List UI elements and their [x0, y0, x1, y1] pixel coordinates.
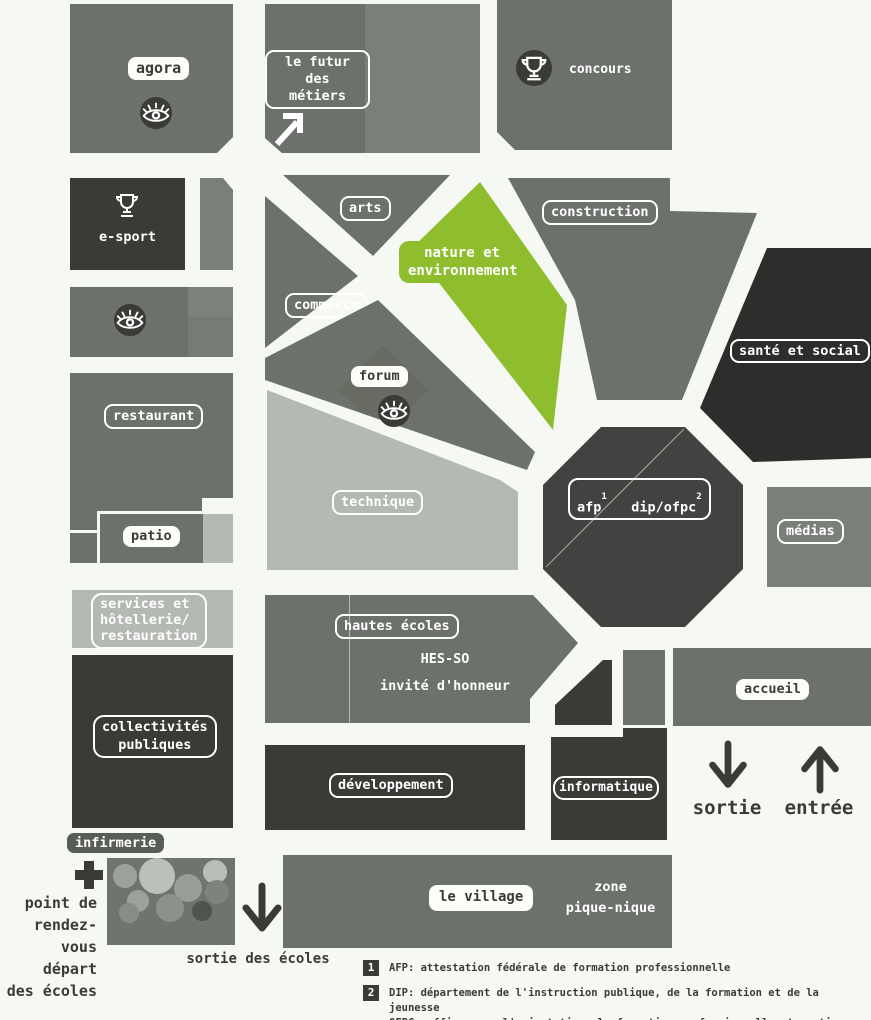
sortie-label: sortie: [689, 797, 765, 819]
sortie-arrow-icon: [706, 740, 750, 798]
spoke-wedge: [555, 660, 612, 725]
agora-label: agora: [128, 57, 189, 80]
nature-label: nature et environnement: [399, 241, 525, 283]
technique-label: technique: [332, 490, 423, 515]
esport-trophy-icon: [111, 190, 143, 226]
entree-label: entrée: [781, 797, 857, 819]
accueil-label: accueil: [736, 679, 809, 700]
infirmerie-label: infirmerie: [67, 833, 164, 853]
hautes-ecoles-label: hautes écoles: [335, 614, 459, 639]
medias-label: médias: [777, 519, 844, 544]
footnote-1-text: AFP: attestation fédérale de formation p…: [389, 960, 730, 976]
annex-block: [200, 178, 233, 270]
agora-eye-icon: [139, 96, 173, 134]
bubble: [192, 901, 212, 921]
entree-arrow-icon: [798, 740, 842, 798]
afp-text: afp: [577, 499, 601, 515]
bubble: [205, 880, 229, 904]
developpement-label: développement: [329, 773, 453, 798]
accueil-annex-block: [623, 650, 665, 725]
rdv-ecoles-text: point de rendez-vous départ des écoles: [0, 892, 97, 1002]
venue-floor-map: agora le futur des métiers concour: [0, 0, 871, 1020]
hesso-invite-text: HES-SO invité d'honneur: [370, 646, 520, 700]
esport-label: e-sport: [70, 229, 185, 245]
meeting-point-block: [107, 858, 235, 945]
bubble: [119, 903, 139, 923]
afp-footnote-ref: 1: [601, 492, 606, 502]
patio-side-terrace: [203, 514, 233, 563]
construction-label: construction: [542, 200, 658, 225]
forum-label: forum: [351, 366, 408, 387]
concours-label: concours: [569, 62, 632, 77]
bubble: [113, 864, 137, 888]
sortie-ecoles-label: sortie des écoles: [178, 951, 338, 967]
concours-trophy-icon: [516, 50, 552, 90]
informatique-label: informatique: [553, 776, 659, 800]
zone-pique-nique-label: zone pique-nique: [553, 877, 668, 919]
bubble: [156, 894, 184, 922]
dip-footnote-ref: 2: [696, 492, 701, 502]
bubble: [139, 858, 175, 894]
octagon-diagonal-line: [543, 427, 743, 627]
footnote-2-badge: 2: [363, 985, 379, 1001]
dip-ofpc-text: dip/ofpc: [631, 499, 696, 515]
restaurant-label: restaurant: [104, 404, 203, 429]
collectivites-label: collectivités publiques: [93, 715, 217, 758]
futur-label: le futur des métiers: [265, 50, 370, 109]
footnote-dip-ofpc: 2 DIP: département de l'instruction publ…: [363, 985, 871, 1020]
corner-divider: [70, 530, 97, 533]
footnote-2-text: DIP: département de l'instruction publiq…: [389, 985, 871, 1020]
afp-dip-ofpc-label: afp1 dip/ofpc2: [568, 478, 711, 520]
eye-block-shade-2: [188, 287, 233, 317]
afp-gap: [607, 499, 631, 515]
first-aid-cross-icon: [74, 858, 104, 896]
sante-label: santé et social: [730, 339, 870, 363]
services-label: services et hôtellerie/ restauration: [91, 593, 207, 649]
futur-arrow-icon: [271, 105, 305, 153]
village-label: le village: [429, 885, 533, 911]
forum-eye-icon: [377, 394, 411, 432]
exhibit-eye-block: [70, 287, 233, 357]
patio-divider-v: [97, 511, 100, 563]
footnote-afp: 1 AFP: attestation fédérale de formation…: [363, 960, 863, 976]
zone-afp-dip-ofpc: [543, 427, 743, 627]
arts-label: arts: [340, 196, 391, 221]
exhibit-eye-icon: [113, 303, 147, 341]
sortie-ecoles-arrow-icon: [240, 882, 284, 942]
footnote-1-badge: 1: [363, 960, 379, 976]
patio-label: patio: [123, 526, 180, 547]
